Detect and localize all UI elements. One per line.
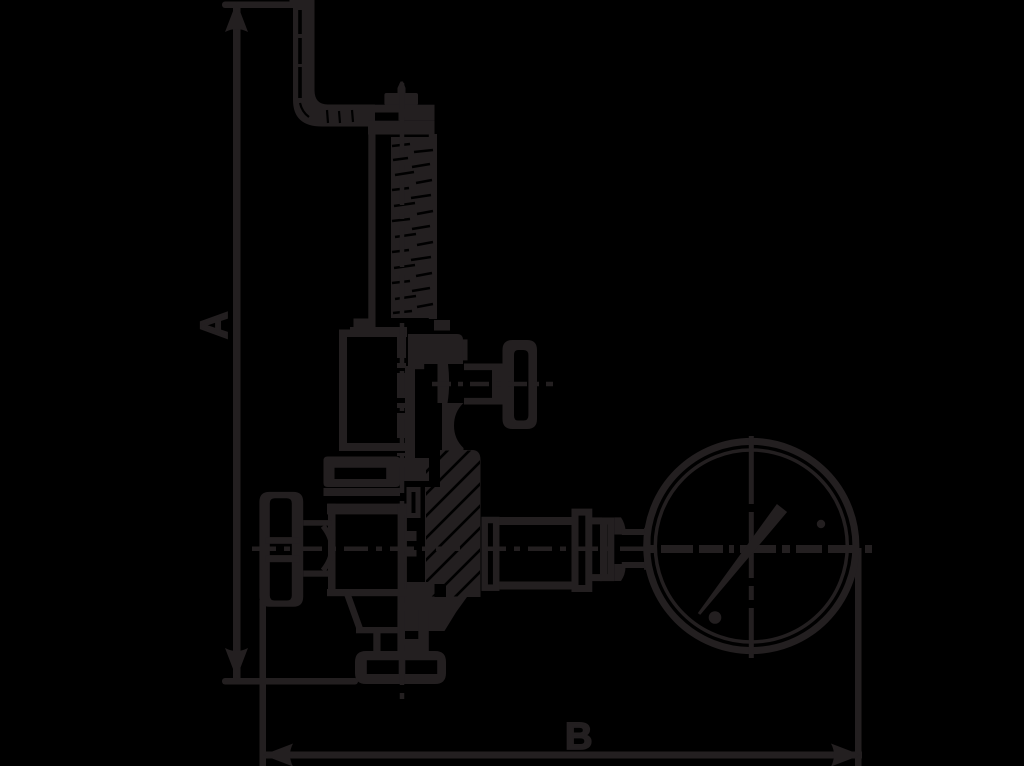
svg-text:A: A xyxy=(194,312,236,339)
svg-text:B: B xyxy=(565,716,592,758)
